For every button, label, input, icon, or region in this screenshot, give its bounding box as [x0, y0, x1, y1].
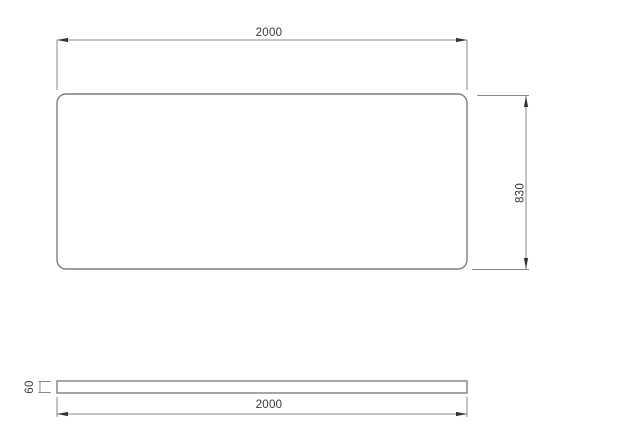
arrowhead-right-icon [456, 38, 467, 42]
dimension-width-top-value: 2000 [256, 27, 283, 39]
panel-edge-outline [57, 381, 467, 393]
dimension-width-top: 2000 [57, 27, 467, 90]
dimension-length-bottom: 2000 [57, 397, 467, 417]
dimension-thickness-left: 60 [24, 380, 51, 393]
side-view: 60 2000 [24, 380, 467, 417]
dimension-thickness-value: 60 [24, 380, 36, 393]
panel-plan-outline [57, 94, 467, 269]
top-view: 2000 830 [57, 27, 529, 270]
dimension-height-right: 830 [472, 96, 529, 270]
drawing-svg: 2000 830 60 [0, 0, 642, 440]
dimension-height-right-value: 830 [515, 183, 527, 203]
arrowhead-up-icon [524, 96, 528, 107]
arrowhead-left-icon [57, 412, 68, 416]
dimension-length-bottom-value: 2000 [256, 399, 283, 411]
arrowhead-left-icon [57, 38, 68, 42]
arrowhead-down-icon [524, 258, 528, 269]
arrowhead-right-icon [456, 412, 467, 416]
technical-drawing-canvas: 2000 830 60 [0, 0, 642, 440]
